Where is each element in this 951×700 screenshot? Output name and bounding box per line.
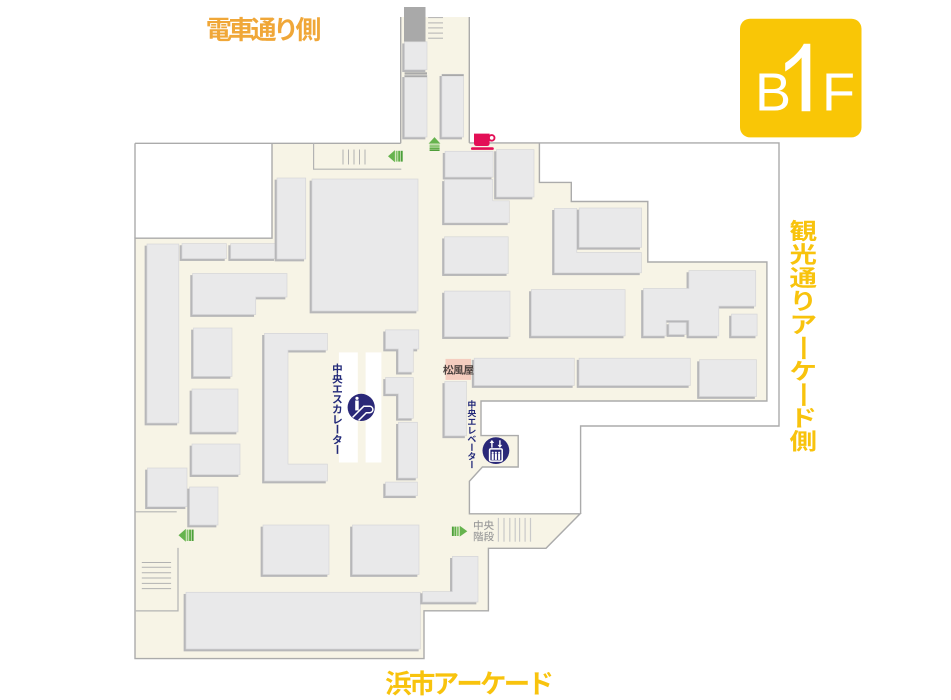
svg-text:F: F [822, 63, 855, 123]
svg-text:B: B [755, 63, 791, 123]
